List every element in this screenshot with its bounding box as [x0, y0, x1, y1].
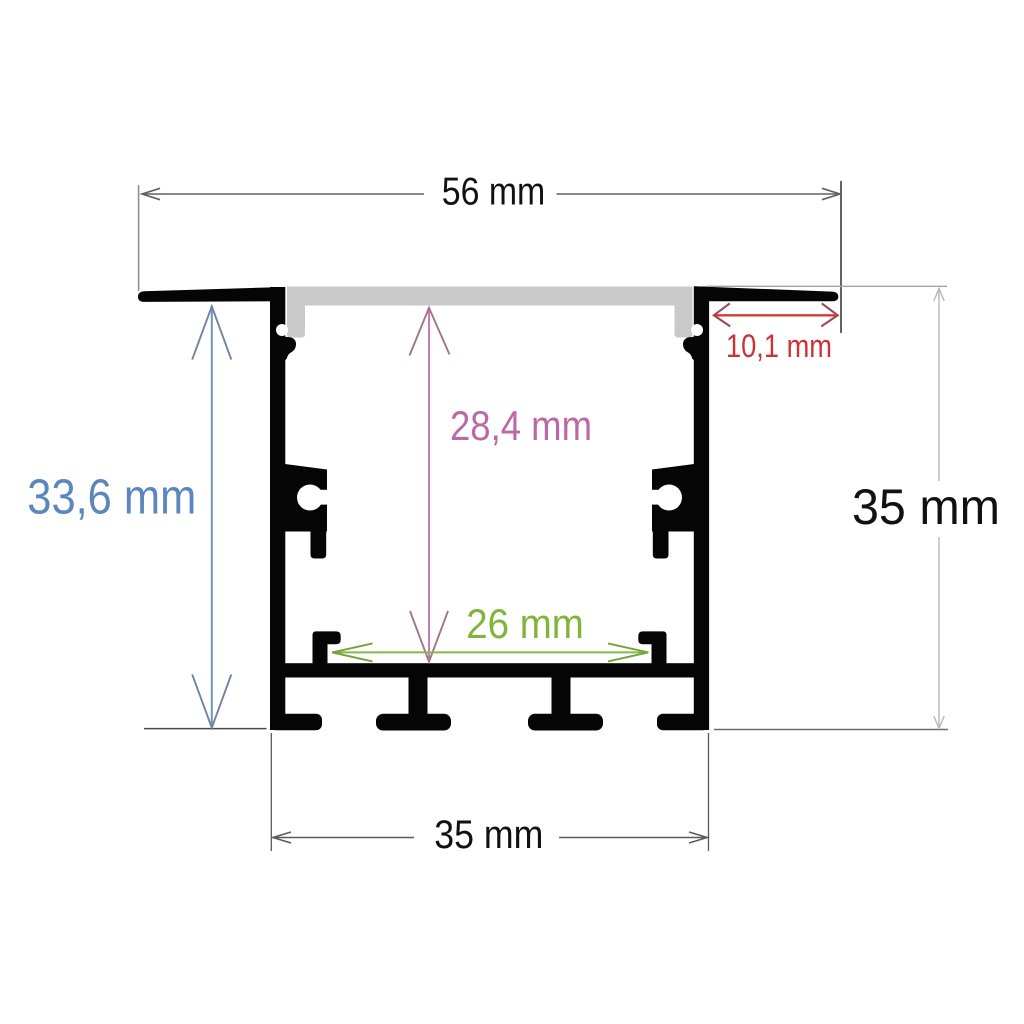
svg-text:56 mm: 56 mm	[442, 171, 546, 214]
svg-text:10,1 mm: 10,1 mm	[726, 328, 832, 364]
svg-text:33,6 mm: 33,6 mm	[27, 470, 196, 525]
svg-text:35 mm: 35 mm	[434, 813, 543, 857]
svg-text:35 mm: 35 mm	[852, 479, 1000, 535]
svg-text:28,4 mm: 28,4 mm	[450, 402, 592, 449]
svg-text:26 mm: 26 mm	[466, 600, 584, 647]
